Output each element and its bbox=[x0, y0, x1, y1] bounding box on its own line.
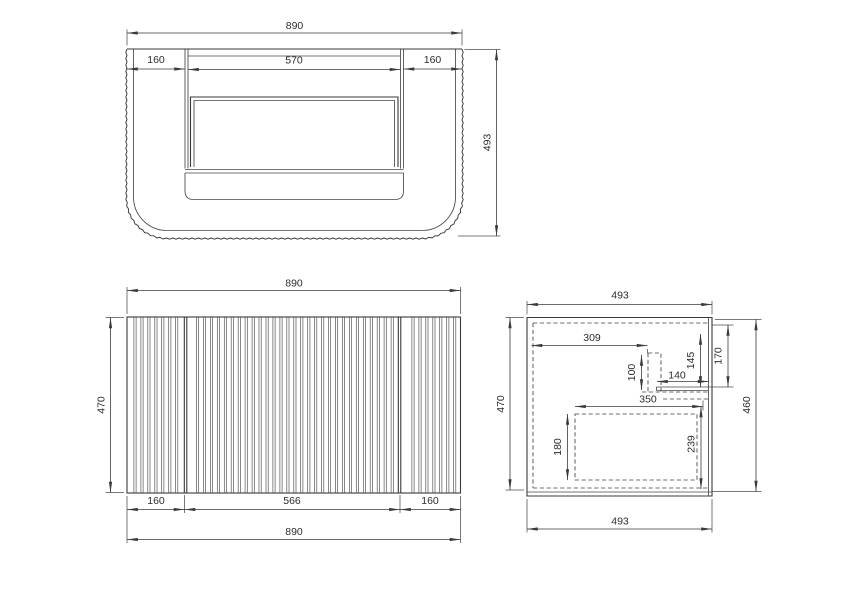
side-dim-180: 180 bbox=[552, 438, 564, 456]
side-dim-140: 140 bbox=[668, 370, 686, 382]
front-dim-160-left: 160 bbox=[147, 495, 165, 507]
side-dim-309: 309 bbox=[583, 332, 601, 344]
plan-dim-570: 570 bbox=[285, 55, 303, 67]
front-dim-890-top: 890 bbox=[285, 278, 303, 290]
front-dim-470: 470 bbox=[96, 396, 108, 414]
side-dim-145: 145 bbox=[685, 352, 697, 370]
side-dim-170: 170 bbox=[713, 347, 725, 365]
side-dim-100: 100 bbox=[626, 364, 638, 382]
side-dim-493-top: 493 bbox=[611, 290, 629, 302]
front-dim-566: 566 bbox=[283, 495, 301, 507]
technical-drawing-page: 890 160 570 160 493 890 470 160 566 160 bbox=[0, 0, 842, 595]
side-dim-493-bottom: 493 bbox=[611, 516, 629, 528]
plan-dim-160-left: 160 bbox=[147, 54, 165, 66]
front-dim-890-bottom: 890 bbox=[285, 526, 303, 538]
front-dim-160-right: 160 bbox=[421, 495, 439, 507]
plan-dim-160-right: 160 bbox=[424, 54, 442, 66]
technical-drawing-canvas: 890 160 570 160 493 890 470 160 566 160 bbox=[0, 0, 842, 595]
plan-dim-493: 493 bbox=[482, 134, 494, 152]
side-dim-470: 470 bbox=[495, 395, 507, 413]
side-dim-350: 350 bbox=[639, 394, 657, 406]
side-dim-460: 460 bbox=[741, 396, 753, 414]
plan-dim-890: 890 bbox=[286, 20, 304, 32]
side-dim-239: 239 bbox=[686, 435, 698, 453]
